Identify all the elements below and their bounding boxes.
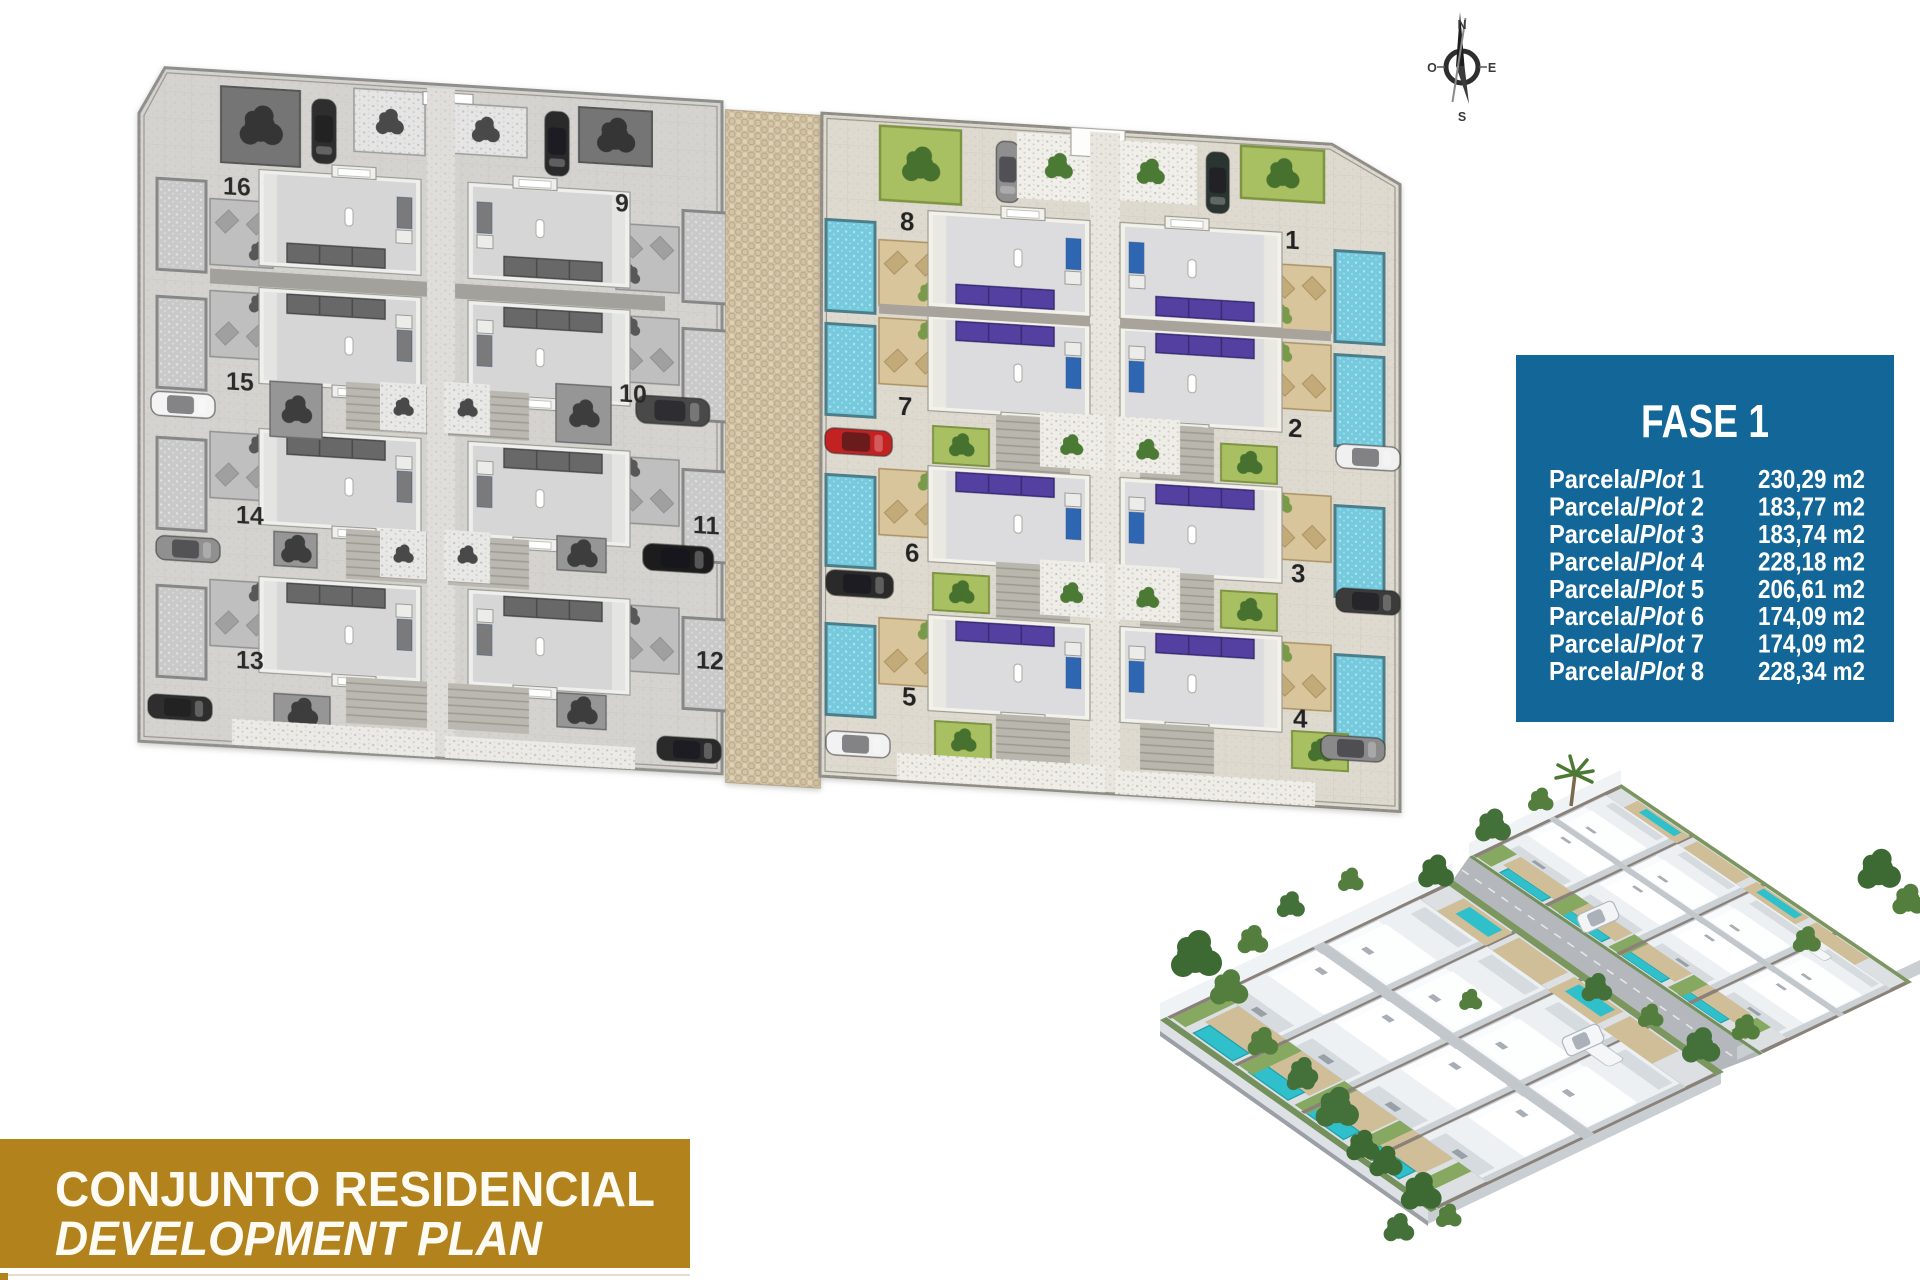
svg-text:13: 13	[236, 646, 264, 676]
svg-text:E: E	[1488, 61, 1496, 75]
svg-text:S: S	[1458, 110, 1466, 124]
svg-text:6: 6	[905, 537, 919, 568]
svg-text:Parcela/Plot 1: Parcela/Plot 1	[1549, 464, 1704, 494]
svg-text:FASE 1: FASE 1	[1641, 395, 1769, 447]
svg-text:228,18 m2: 228,18 m2	[1758, 546, 1865, 576]
svg-text:Parcela/Plot 5: Parcela/Plot 5	[1549, 574, 1704, 604]
svg-text:CONJUNTO RESIDENCIAL: CONJUNTO RESIDENCIAL	[55, 1163, 655, 1217]
svg-text:16: 16	[223, 172, 251, 202]
svg-text:174,09 m2: 174,09 m2	[1758, 601, 1865, 631]
svg-text:4: 4	[1293, 703, 1308, 734]
svg-text:Parcela/Plot 8: Parcela/Plot 8	[1549, 656, 1704, 686]
svg-text:174,09 m2: 174,09 m2	[1758, 629, 1865, 659]
svg-text:9: 9	[615, 189, 629, 218]
svg-text:7: 7	[898, 391, 912, 422]
svg-text:Parcela/Plot 3: Parcela/Plot 3	[1549, 519, 1704, 549]
svg-text:11: 11	[693, 511, 720, 541]
svg-text:O: O	[1427, 61, 1437, 75]
svg-text:Parcela/Plot 2: Parcela/Plot 2	[1549, 492, 1704, 522]
svg-text:Parcela/Plot 7: Parcela/Plot 7	[1549, 629, 1704, 659]
svg-text:1: 1	[1285, 224, 1299, 255]
svg-text:Parcela/Plot 4: Parcela/Plot 4	[1549, 546, 1704, 576]
svg-text:12: 12	[696, 646, 724, 676]
svg-text:2: 2	[1288, 413, 1302, 444]
svg-text:183,74 m2: 183,74 m2	[1758, 519, 1865, 549]
svg-text:5: 5	[902, 681, 916, 712]
svg-text:10: 10	[619, 380, 647, 410]
svg-text:228,34 m2: 228,34 m2	[1758, 656, 1865, 686]
svg-text:Parcela/Plot 6: Parcela/Plot 6	[1549, 601, 1704, 631]
svg-text:15: 15	[226, 367, 254, 397]
svg-text:230,29 m2: 230,29 m2	[1758, 464, 1865, 494]
svg-text:DEVELOPMENT PLAN: DEVELOPMENT PLAN	[55, 1213, 543, 1266]
svg-text:14: 14	[236, 501, 264, 531]
svg-text:3: 3	[1291, 558, 1305, 589]
svg-text:N: N	[1457, 18, 1466, 32]
svg-text:8: 8	[900, 206, 914, 237]
svg-text:183,77 m2: 183,77 m2	[1758, 492, 1865, 522]
svg-text:206,61 m2: 206,61 m2	[1758, 574, 1865, 604]
